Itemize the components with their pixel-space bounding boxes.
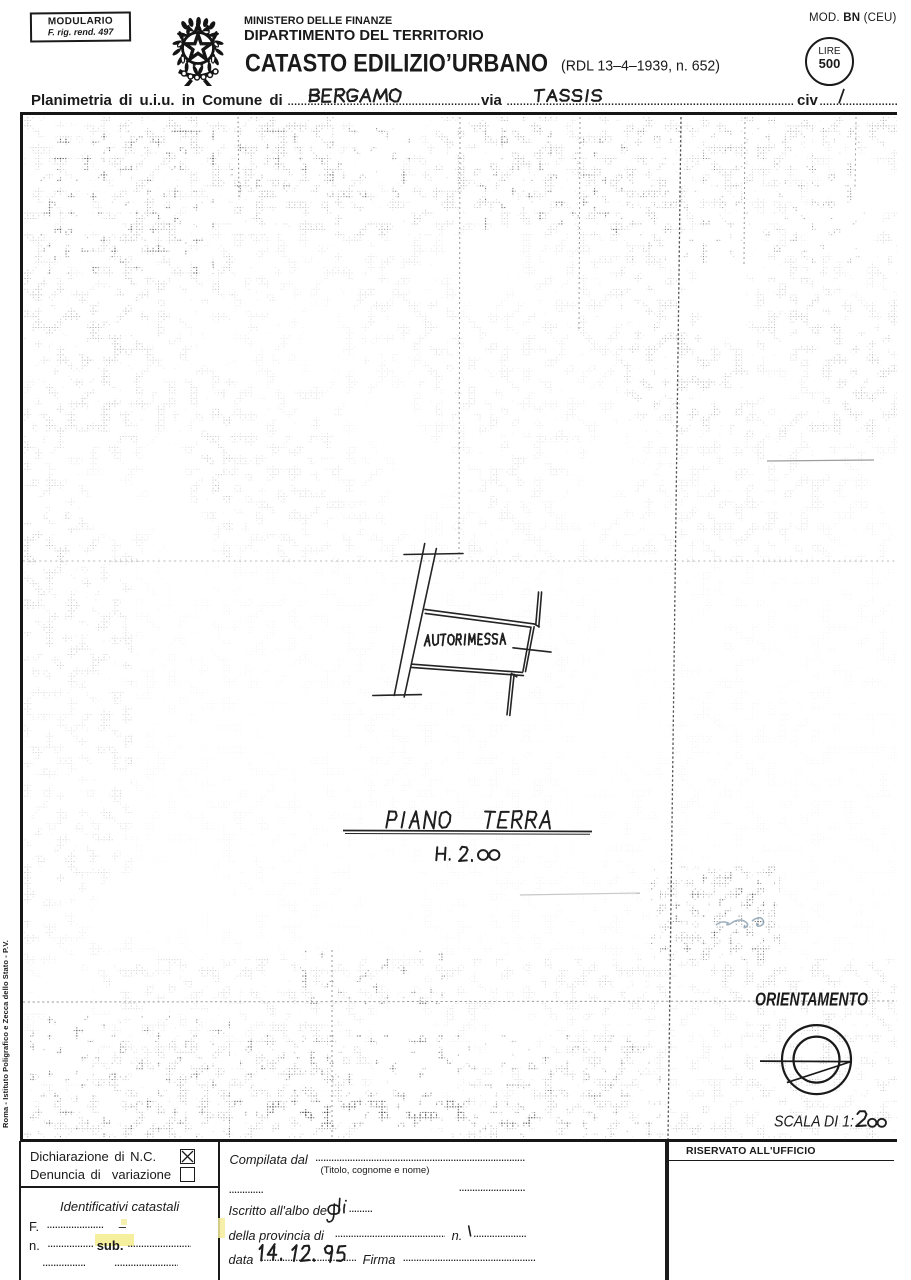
svg-text:SCALA DI 1:: SCALA DI 1:: [774, 1114, 854, 1131]
svg-text:ORIENTAMENTO: ORIENTAMENTO: [755, 990, 868, 1010]
